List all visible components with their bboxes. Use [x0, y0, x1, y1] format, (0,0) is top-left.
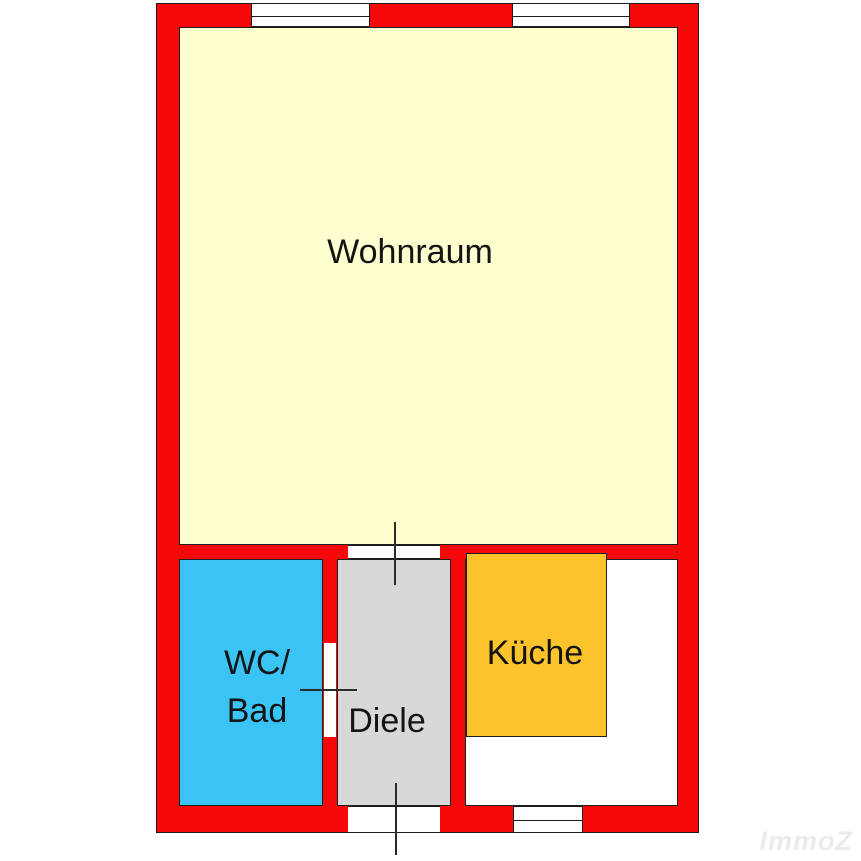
- window-pane-line: [513, 16, 629, 17]
- room-label-kueche: Küche: [455, 634, 615, 672]
- door-opening-entrance: [348, 806, 440, 833]
- room-label-wohnraum: Wohnraum: [310, 233, 510, 271]
- window-top-right-icon: [512, 3, 630, 27]
- room-label-wc: WC/: [187, 644, 327, 682]
- room-wohnraum: [179, 27, 678, 545]
- watermark-logo: ImmoZ: [735, 826, 853, 857]
- room-diele: [337, 559, 451, 806]
- room-label-diele: Diele: [327, 702, 447, 740]
- door-axis-line-entrance: [395, 783, 397, 855]
- door-axis-line-wc-bad: [300, 689, 357, 691]
- room-label-bad: Bad: [187, 692, 327, 730]
- window-pane-line: [252, 16, 369, 17]
- window-pane-line: [514, 820, 582, 821]
- window-top-left-icon: [251, 3, 370, 27]
- door-axis-line-wohnraum-diele: [394, 522, 396, 585]
- room-wc-bad: [179, 559, 323, 806]
- floorplan-canvas: Wohnraum WC/ Bad Diele Küche ImmoZ: [0, 0, 861, 861]
- window-bottom-icon: [513, 806, 583, 833]
